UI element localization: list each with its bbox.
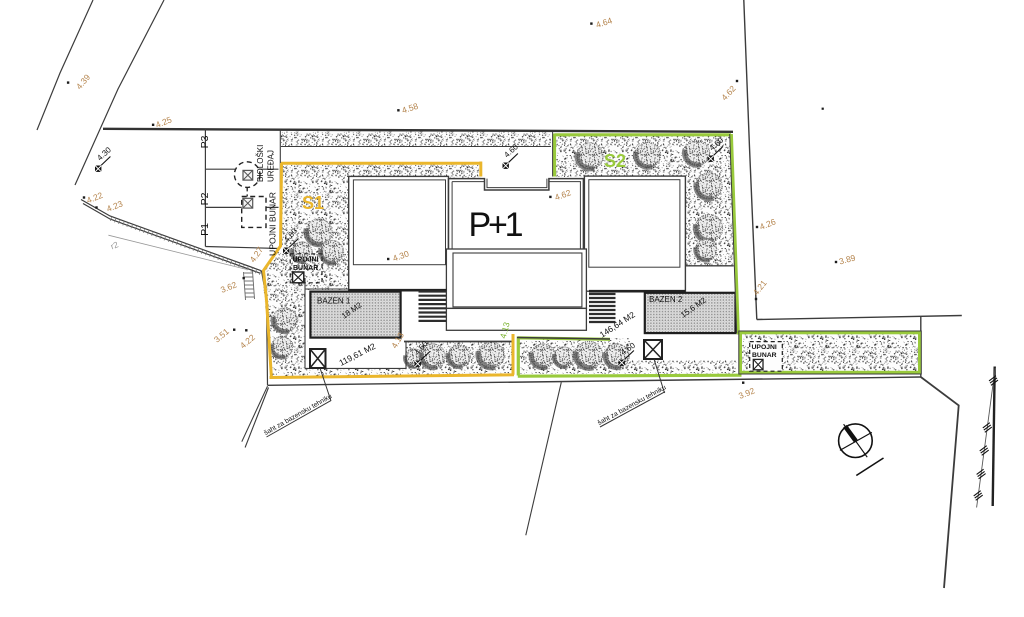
svg-text:4.23: 4.23 [105,198,124,214]
svg-text:P2: P2 [199,192,211,205]
svg-text:4.39: 4.39 [74,72,92,91]
svg-text:3.89: 3.89 [838,252,857,266]
svg-text:BUNAR: BUNAR [293,265,318,272]
svg-text:3.92: 3.92 [737,385,756,401]
svg-text:BUNAR: BUNAR [752,352,777,359]
svg-text:UPOJNI: UPOJNI [293,256,319,263]
svg-text:4.30: 4.30 [95,145,113,162]
svg-text:4.21: 4.21 [751,278,769,297]
svg-text:šaht za bazensku tehniku: šaht za bazensku tehniku [263,393,333,437]
svg-text:S2: S2 [604,151,626,171]
svg-text:4.64: 4.64 [595,15,614,30]
svg-text:UPOJNI: UPOJNI [752,344,777,351]
svg-text:S1: S1 [302,193,324,213]
svg-text:4.62: 4.62 [719,83,738,102]
svg-text:4.25: 4.25 [154,114,173,130]
svg-text:P3: P3 [199,135,211,148]
svg-text:119,61 M2: 119,61 M2 [337,341,377,368]
svg-text:UPOJNI BUNAR: UPOJNI BUNAR [268,192,278,256]
svg-text:4.26: 4.26 [758,216,777,232]
svg-text:4.22: 4.22 [238,332,257,350]
svg-text:UREĐAJ: UREĐAJ [267,150,276,182]
svg-text:3.51: 3.51 [212,326,231,344]
svg-text:BAZEN 2: BAZEN 2 [649,295,683,304]
svg-text:P+1: P+1 [469,206,524,244]
svg-text:BIOLOŠKI: BIOLOŠKI [256,145,265,182]
svg-text:4.58: 4.58 [401,101,420,116]
svg-text:3.62: 3.62 [219,279,238,295]
svg-text:šaht za bazensku tehniku: šaht za bazensku tehniku [597,384,668,427]
svg-text:BAZEN 1: BAZEN 1 [317,297,351,306]
svg-text:4.22: 4.22 [85,190,104,206]
svg-text:r2: r2 [109,239,120,251]
svg-text:P1: P1 [199,223,211,236]
